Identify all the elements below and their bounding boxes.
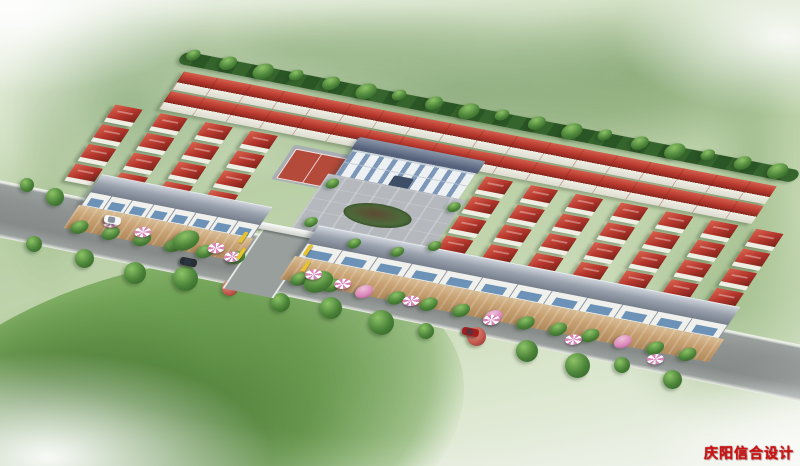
red-car bbox=[461, 326, 479, 337]
aerial-rendering: 庆阳信合设计 bbox=[0, 0, 800, 466]
white-car bbox=[103, 214, 121, 225]
cars bbox=[0, 0, 800, 466]
dark-car bbox=[179, 256, 197, 267]
designer-watermark: 庆阳信合设计 bbox=[704, 443, 794, 463]
